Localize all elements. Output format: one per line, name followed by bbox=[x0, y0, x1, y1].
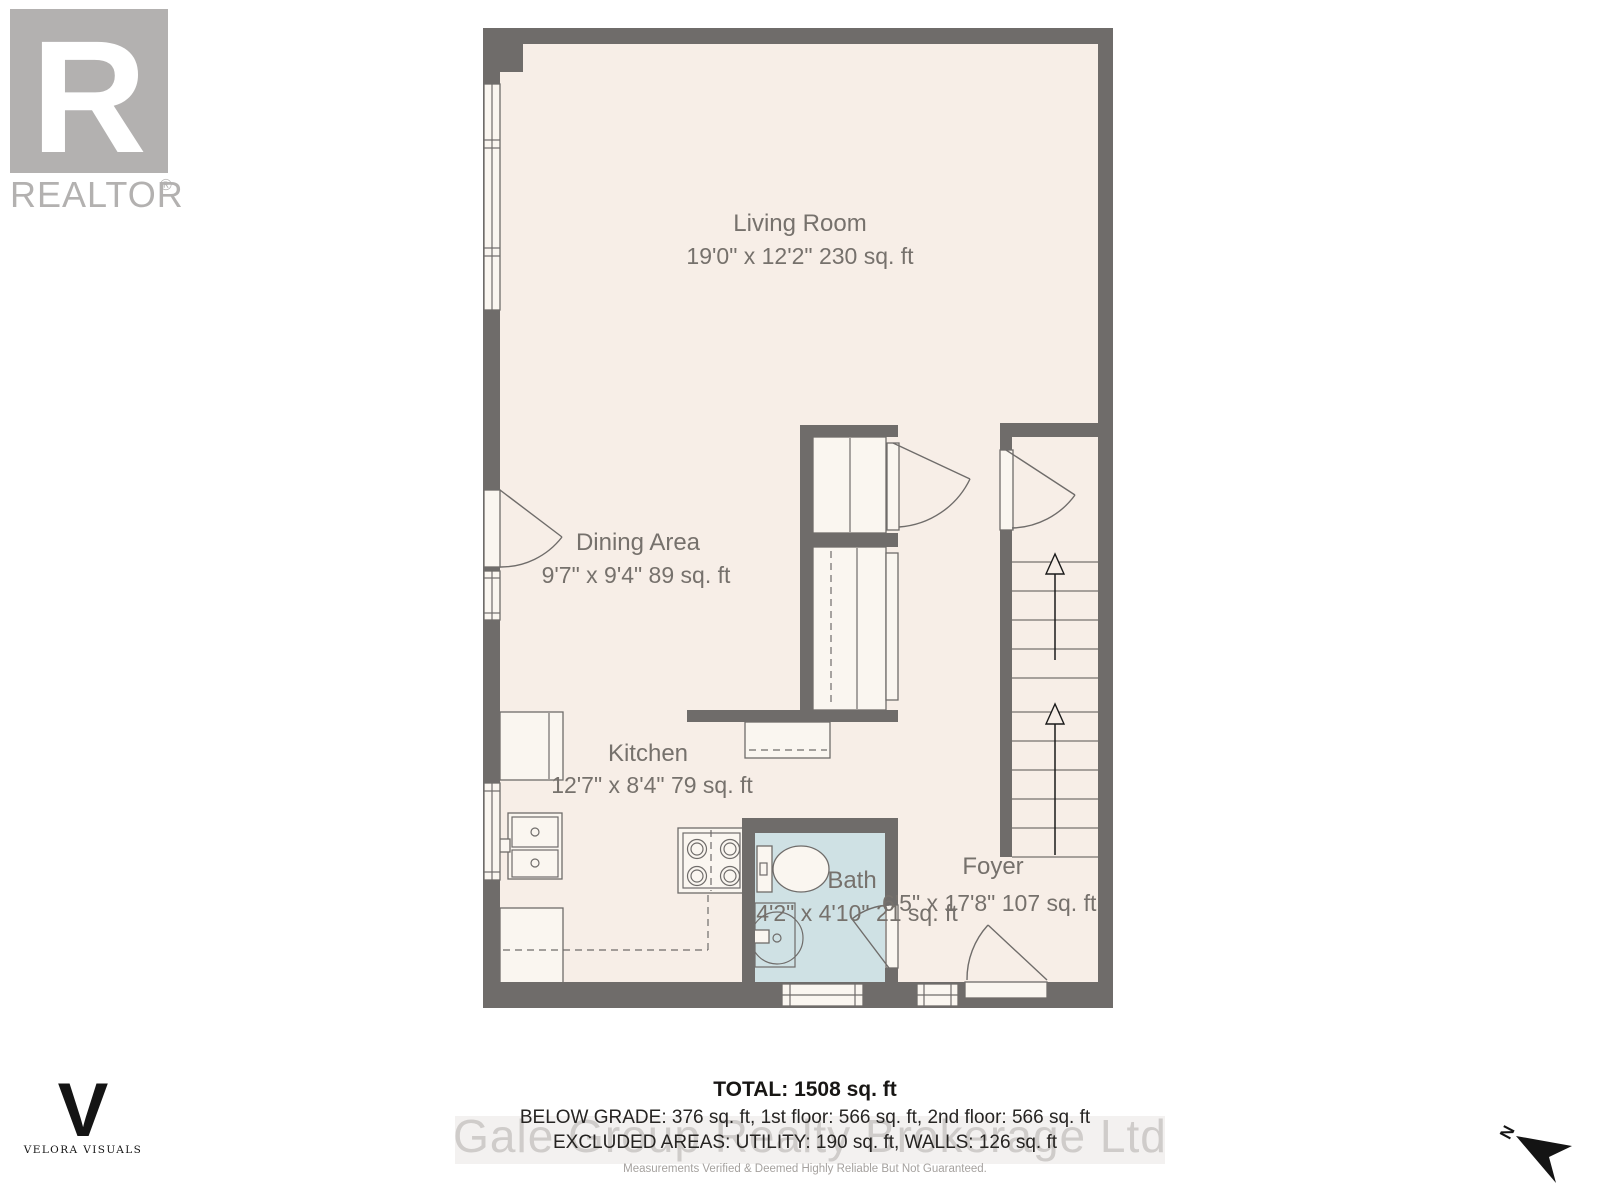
closet-wall-left bbox=[800, 425, 813, 722]
kitchen-window bbox=[484, 783, 500, 880]
room-label-kitchen: Kitchen bbox=[608, 740, 688, 767]
realtor-logo: R REALTOR ® bbox=[10, 7, 184, 215]
closet-wall-top bbox=[800, 425, 898, 437]
registered-trademark-icon: ® bbox=[160, 177, 172, 194]
toilet-tank bbox=[757, 846, 772, 892]
velora-logo-letter: V bbox=[58, 1068, 109, 1153]
room-label-foyer: Foyer bbox=[962, 853, 1023, 880]
room-dims-foyer: 6'5" x 17'8" 107 sq. ft bbox=[882, 890, 1097, 916]
room-dims-dining-area: 9'7" x 9'4" 89 sq. ft bbox=[542, 562, 731, 588]
toilet-bowl bbox=[773, 846, 829, 892]
summary-block: Gale Group Realty Brokerage Ltd TOTAL: 1… bbox=[453, 1078, 1167, 1175]
room-label-living-room: Living Room bbox=[733, 210, 866, 237]
exterior-wall-top bbox=[483, 28, 1113, 44]
bath-window bbox=[782, 984, 863, 1006]
room-label-bath: Bath bbox=[827, 867, 876, 894]
north-label: N bbox=[1496, 1122, 1519, 1142]
summary-total: TOTAL: 1508 sq. ft bbox=[713, 1078, 897, 1101]
foyer-window bbox=[917, 984, 958, 1006]
stairwell-wall-top bbox=[1000, 423, 1098, 437]
floor-plan-canvas: R REALTOR ® bbox=[0, 0, 1600, 1200]
kitchen-sink-counter bbox=[508, 813, 562, 879]
closet-wall-middle bbox=[800, 533, 898, 547]
lower-closet bbox=[813, 547, 886, 710]
room-dims-living-room: 19'0" x 12'2" 230 sq. ft bbox=[686, 243, 914, 269]
lower-closet-door bbox=[886, 553, 898, 700]
room-dims-kitchen: 12'7" x 8'4" 79 sq. ft bbox=[551, 772, 753, 798]
disclaimer-text: Measurements Verified & Deemed Highly Re… bbox=[623, 1163, 987, 1175]
exterior-wall-right bbox=[1098, 28, 1113, 1008]
realtor-logo-letter: R bbox=[31, 7, 147, 186]
kitchen-counter-lower bbox=[500, 908, 563, 983]
summary-breakdown: BELOW GRADE: 376 sq. ft, 1st floor: 566 … bbox=[520, 1107, 1091, 1128]
closets bbox=[813, 437, 886, 710]
kitchen-hall-wall bbox=[687, 710, 898, 722]
room-label-dining-area: Dining Area bbox=[576, 529, 701, 556]
kitchen-cabinet bbox=[500, 712, 563, 780]
north-arrow-icon bbox=[1516, 1136, 1572, 1183]
bath-wall-top bbox=[742, 818, 898, 833]
velora-visuals-logo: V VELORA VISUALS bbox=[23, 1068, 142, 1156]
bath-wall-left bbox=[742, 833, 755, 982]
realtor-wordmark: REALTOR bbox=[10, 174, 184, 215]
kitchen-peninsula bbox=[745, 722, 830, 758]
living-room-window bbox=[484, 84, 500, 310]
summary-excluded: EXCLUDED AREAS: UTILITY: 190 sq. ft, WAL… bbox=[553, 1132, 1058, 1153]
north-arrow: N bbox=[1496, 1122, 1572, 1183]
bath-wall-right-lower bbox=[885, 968, 898, 982]
dining-window bbox=[484, 571, 500, 620]
velora-wordmark: VELORA VISUALS bbox=[23, 1144, 142, 1156]
